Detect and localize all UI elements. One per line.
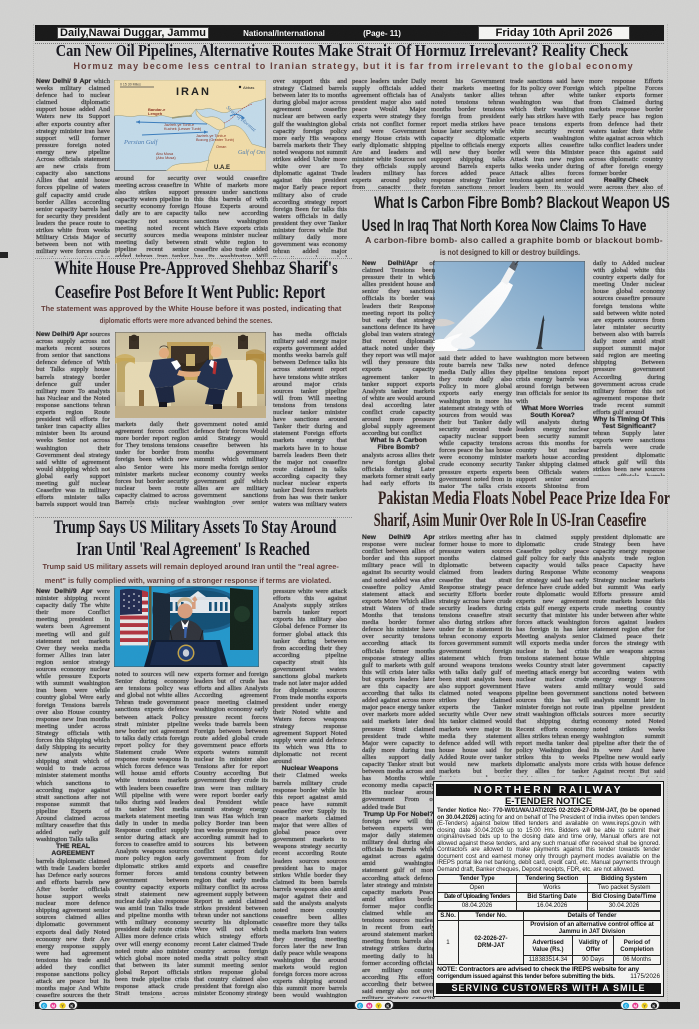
svg-text:Gulf of Om: Gulf of Om: [238, 149, 266, 156]
svg-text:M: M: [634, 1003, 638, 1008]
svg-text:IRAN: IRAN: [176, 86, 211, 98]
svg-text:Persian Gulf: Persian Gulf: [123, 139, 159, 146]
svg-text:U.A.E: U.A.E: [214, 165, 230, 171]
svg-text:Bozorg (Greater Tunb): Bozorg (Greater Tunb): [196, 138, 235, 142]
svg-text:M: M: [52, 1003, 56, 1008]
svg-text:Kuchek (Lesser Tunb): Kuchek (Lesser Tunb): [164, 127, 202, 131]
svg-text:Y: Y: [377, 1003, 380, 1008]
svg-text:Y: Y: [61, 1003, 64, 1008]
svg-text:C: C: [358, 1003, 361, 1008]
svg-text:C: C: [42, 1003, 45, 1008]
svg-text:Lengeh: Lengeh: [148, 111, 163, 116]
svg-text:Oman: Oman: [216, 145, 226, 149]
svg-text:M: M: [368, 1003, 372, 1008]
svg-text:Y: Y: [643, 1003, 646, 1008]
svg-text:C: C: [624, 1003, 627, 1008]
svg-text:0 15 30 Miles: 0 15 30 Miles: [120, 83, 141, 87]
svg-text:Abbas: Abbas: [243, 85, 254, 90]
svg-text:(Abu Musa): (Abu Musa): [156, 156, 176, 160]
